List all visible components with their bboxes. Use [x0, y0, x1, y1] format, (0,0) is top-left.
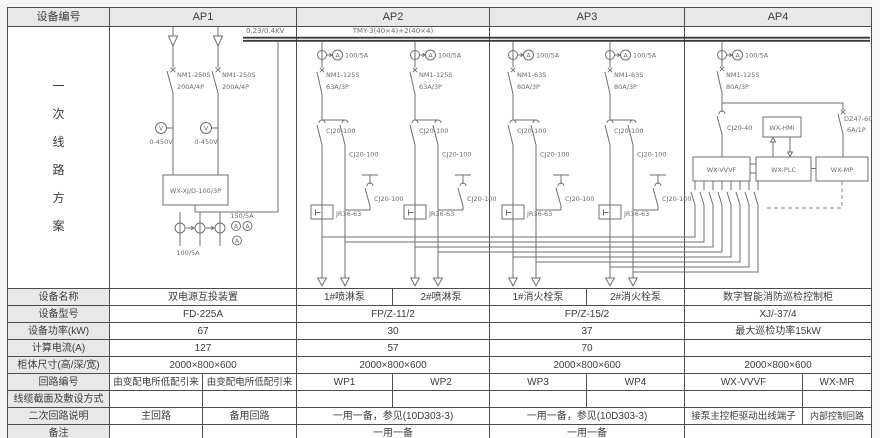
cell-circuit-ap1b: 由变配电所低配引来 — [203, 374, 297, 391]
cell-pump1: 1#喷淋泵 — [297, 289, 393, 306]
scheme-char: 一 — [52, 79, 64, 94]
cell-cable — [393, 391, 490, 408]
cell-cable — [297, 391, 393, 408]
scheme-title-vertical: 一 次 线 路 方 案 — [10, 27, 107, 234]
cell-cable — [587, 391, 685, 408]
row-power: 设备功率(kW) 67 30 37 最大巡检功率15kW — [8, 323, 872, 340]
cell-power-ap1: 67 — [110, 323, 297, 340]
row-remark: 备注 一用一备 一用一备 — [8, 425, 872, 438]
row-label-cable: 线缆截面及敷设方式 — [8, 391, 110, 408]
cell-remark-ap2: 一用一备 — [297, 425, 490, 438]
cell-secondary-ap2: 一用一备，参见(10D303-3) — [297, 408, 490, 425]
cell-secondary-main: 主回路 — [110, 408, 203, 425]
row-label-device-name: 设备名称 — [8, 289, 110, 306]
cell-ap4-device-name: 数字智能消防巡检控制柜 — [685, 289, 872, 306]
cell-secondary-ap4a: 接泵主控柜驱动出线端子 — [685, 408, 803, 425]
row-label-secondary: 二次回路说明 — [8, 408, 110, 425]
cell-circuit-wp2: WP2 — [393, 374, 490, 391]
cell-cable — [110, 391, 203, 408]
cell-current-ap3: 70 — [490, 340, 685, 357]
drawing-sheet: { "header": { "device_no_label": "设备编号",… — [0, 0, 880, 438]
cell-size-ap1: 2000×800×600 — [110, 357, 297, 374]
cell-model-ap4: XJ/-37/4 — [685, 306, 872, 323]
cell-size-ap3: 2000×800×600 — [490, 357, 685, 374]
cell-current-ap4 — [685, 340, 872, 357]
header-ap2: AP2 — [297, 8, 490, 27]
header-device-no: 设备编号 — [8, 8, 110, 27]
row-device-name: 设备名称 双电源互投装置 1#喷淋泵 2#喷淋泵 1#消火栓泵 2#消火栓泵 数… — [8, 289, 872, 306]
cell-secondary-ap3: 一用一备，参见(10D303-3) — [490, 408, 685, 425]
spec-table: 设备编号 AP1 AP2 AP3 AP4 一 次 线 路 方 案 设备名称 双电… — [7, 7, 872, 438]
row-current: 计算电流(A) 127 57 70 — [8, 340, 872, 357]
cell-power-ap3: 37 — [490, 323, 685, 340]
header-ap1: AP1 — [110, 8, 297, 27]
cell-circuit-vvvf: WX-VVVF — [685, 374, 803, 391]
scheme-char: 方 — [52, 191, 64, 206]
cell-cable — [203, 391, 297, 408]
cell-remark-ap1b — [203, 425, 297, 438]
scheme-title-cell: 一 次 线 路 方 案 — [8, 27, 110, 289]
row-label-power: 设备功率(kW) — [8, 323, 110, 340]
row-label-circuit-no: 回路编号 — [8, 374, 110, 391]
row-circuit-no: 回路编号 由变配电所低配引来 由变配电所低配引来 WP1 WP2 WP3 WP4… — [8, 374, 872, 391]
row-cable: 线缆截面及敷设方式 — [8, 391, 872, 408]
scheme-char: 路 — [52, 163, 64, 178]
cell-ap1-device-name: 双电源互投装置 — [110, 289, 297, 306]
cell-current-ap2: 57 — [297, 340, 490, 357]
row-label-remark: 备注 — [8, 425, 110, 438]
cell-remark-ap4 — [685, 425, 872, 438]
cell-model-ap1: FD-225A — [110, 306, 297, 323]
cell-circuit-wp1: WP1 — [297, 374, 393, 391]
diagram-area-ap3 — [490, 27, 685, 289]
diagram-area-ap4 — [685, 27, 872, 289]
diagram-row: 一 次 线 路 方 案 — [8, 27, 872, 289]
cell-circuit-ap1a: 由变配电所低配引来 — [110, 374, 203, 391]
row-secondary: 二次回路说明 主回路 备用回路 一用一备，参见(10D303-3) 一用一备，参… — [8, 408, 872, 425]
row-label-model: 设备型号 — [8, 306, 110, 323]
cell-pump4: 2#消火栓泵 — [587, 289, 685, 306]
row-model: 设备型号 FD-225A FP/Z-11/2 FP/Z-15/2 XJ/-37/… — [8, 306, 872, 323]
diagram-area-ap2 — [297, 27, 490, 289]
row-label-current: 计算电流(A) — [8, 340, 110, 357]
header-row: 设备编号 AP1 AP2 AP3 AP4 — [8, 8, 872, 27]
cell-size-ap2: 2000×800×600 — [297, 357, 490, 374]
diagram-area-ap1 — [110, 27, 297, 289]
cell-secondary-backup: 备用回路 — [203, 408, 297, 425]
header-ap3: AP3 — [490, 8, 685, 27]
row-cabinet-size: 柜体尺寸(高/深/宽) 2000×800×600 2000×800×600 20… — [8, 357, 872, 374]
cell-cable — [490, 391, 587, 408]
cell-cable — [803, 391, 872, 408]
cell-size-ap4: 2000×800×600 — [685, 357, 872, 374]
scheme-char: 案 — [52, 219, 64, 234]
scheme-char: 线 — [52, 135, 64, 150]
cell-model-ap2: FP/Z-11/2 — [297, 306, 490, 323]
cell-power-ap4: 最大巡检功率15kW — [685, 323, 872, 340]
cell-circuit-mr: WX-MR — [803, 374, 872, 391]
cell-power-ap2: 30 — [297, 323, 490, 340]
cell-circuit-wp3: WP3 — [490, 374, 587, 391]
row-label-cabinet-size: 柜体尺寸(高/深/宽) — [8, 357, 110, 374]
cell-circuit-wp4: WP4 — [587, 374, 685, 391]
cell-current-ap1: 127 — [110, 340, 297, 357]
cell-pump3: 1#消火栓泵 — [490, 289, 587, 306]
cell-cable — [685, 391, 803, 408]
cell-remark-ap3: 一用一备 — [490, 425, 685, 438]
cell-remark-ap1a — [110, 425, 203, 438]
header-ap4: AP4 — [685, 8, 872, 27]
scheme-char: 次 — [52, 107, 64, 122]
cell-pump2: 2#喷淋泵 — [393, 289, 490, 306]
cell-model-ap3: FP/Z-15/2 — [490, 306, 685, 323]
cell-secondary-ap4b: 内部控制回路 — [803, 408, 872, 425]
